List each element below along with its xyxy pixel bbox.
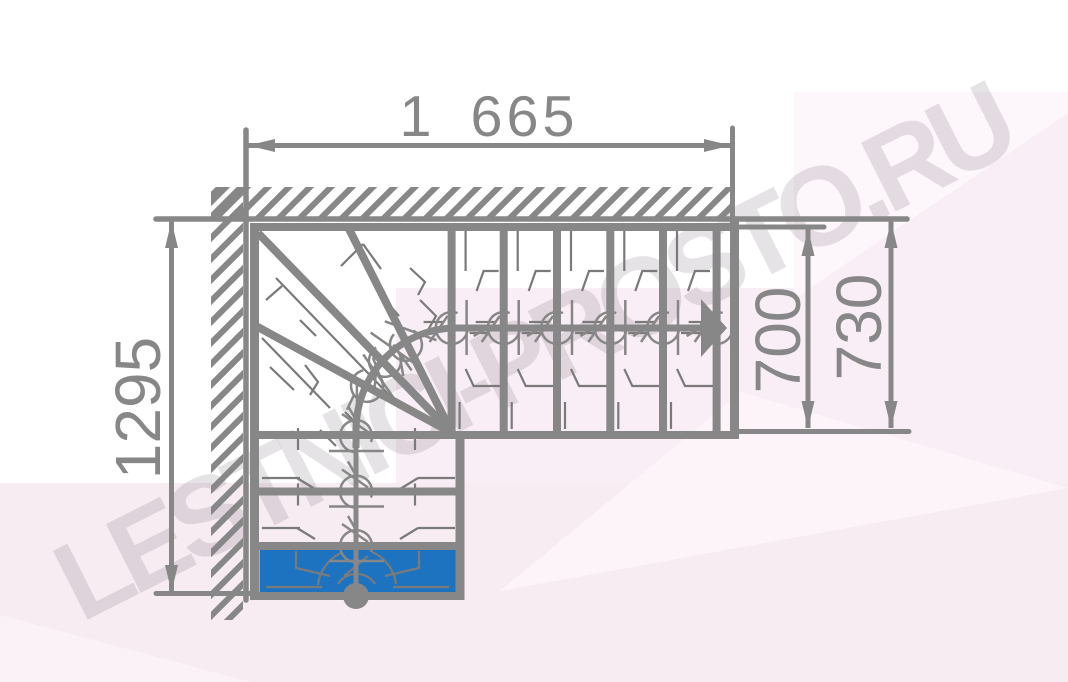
svg-text:730: 730 <box>823 274 895 381</box>
svg-text:1 665: 1 665 <box>400 85 579 149</box>
svg-text:700: 700 <box>742 287 814 394</box>
svg-text:1295: 1295 <box>102 337 174 479</box>
